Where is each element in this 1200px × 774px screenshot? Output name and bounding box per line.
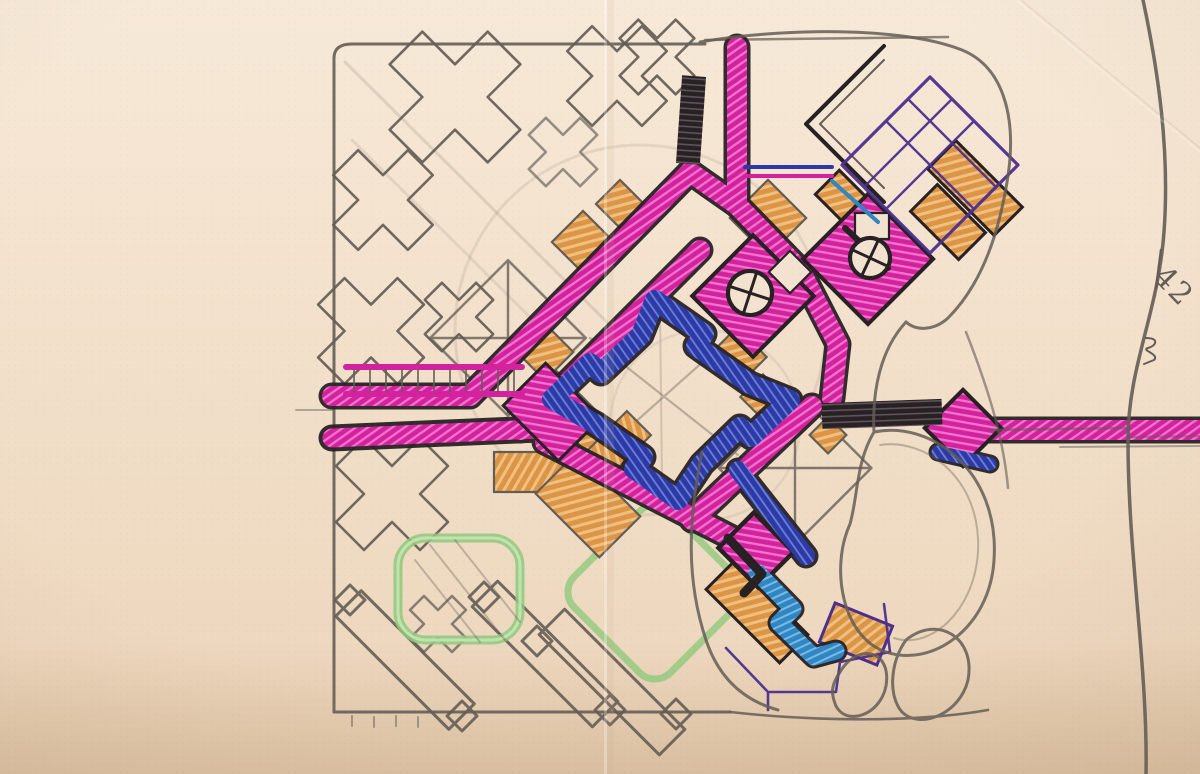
paper-folds-group [0,0,1200,774]
scanned-plan-sketch: 42 [0,0,1200,774]
plan-drawing-svg: 42 [0,0,1200,774]
paper-grain [0,0,1200,774]
